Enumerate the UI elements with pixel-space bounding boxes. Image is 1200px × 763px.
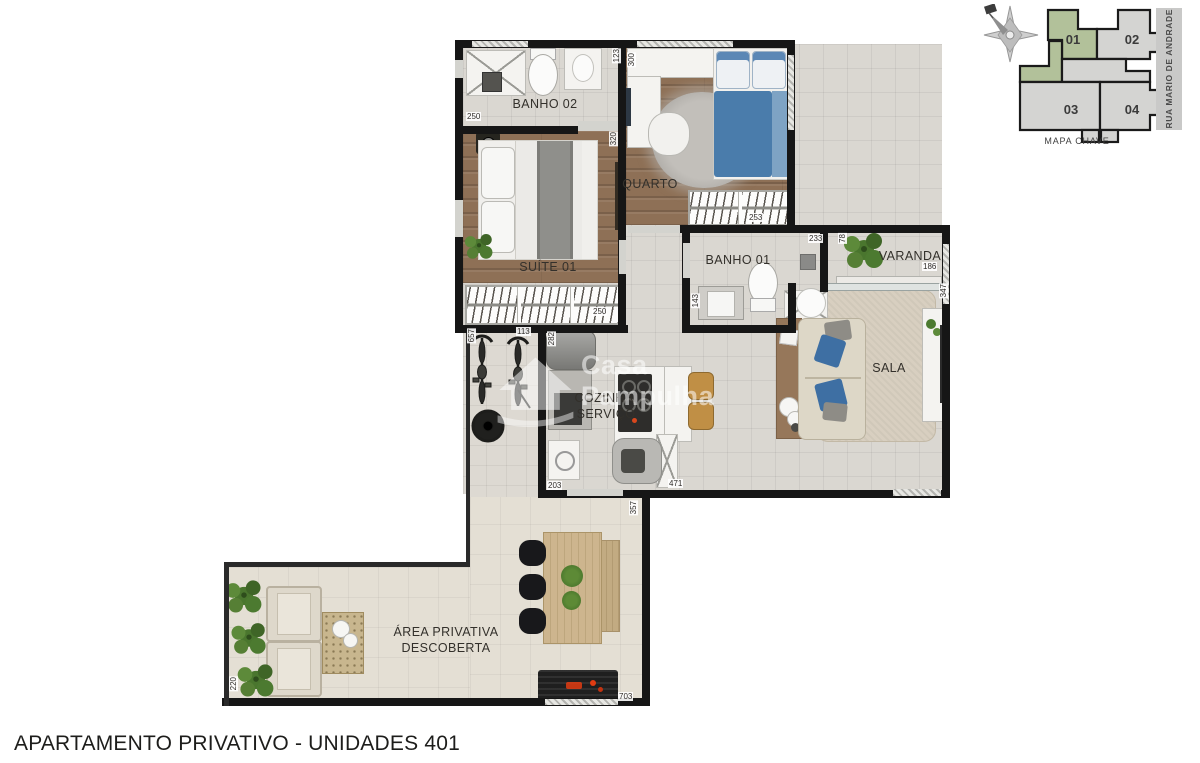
dim-banho02-w: 250 (466, 112, 481, 121)
toilet-tank-banho01 (750, 298, 776, 312)
wall-left (455, 40, 463, 333)
shower-drain (482, 72, 502, 92)
lounge-chair-1 (266, 586, 322, 642)
dim-quarto-closet: 253 (748, 213, 763, 222)
sofa-seam (805, 377, 861, 379)
dim-kitchen-bl: 203 (547, 481, 562, 490)
grill-flame-dot-1 (590, 680, 596, 686)
wall-banho01-left (682, 225, 690, 333)
pillow-quarto-2 (752, 51, 786, 89)
key-map-unit-04-label: 04 (1125, 102, 1140, 117)
closet-suite (465, 285, 624, 325)
key-map-unit-01-label: 01 (1066, 32, 1080, 47)
key-map-caption: MAPA CHAVE (1022, 136, 1132, 146)
table-plant-1 (561, 565, 583, 587)
terrace-wall-top (224, 562, 470, 567)
dim-varanda-left: 78 (838, 233, 847, 244)
window-sill-quarto-top (637, 41, 733, 47)
dim-kitchen-top: 282 (547, 331, 556, 346)
key-map-unit-02-label: 02 (1125, 32, 1139, 47)
wardrobe-divider (738, 192, 742, 224)
wardrobe-quarto (688, 190, 792, 226)
floor-plan-page: BANHO 02 QUARTO SUÍTE 01 BANHO 01 VARAND… (0, 0, 1200, 763)
area-line-1: ÁREA PRIVATIVA (380, 624, 512, 640)
window-sill-sala-bottom (893, 489, 941, 496)
wall-banho01-top (680, 225, 828, 233)
duvet-quarto (714, 91, 772, 177)
tank-basin (621, 449, 645, 473)
cozinha-line-2: SERVIÇO (560, 406, 652, 422)
bed-suite (478, 140, 598, 260)
dim-suite-wall: 320 (609, 131, 618, 146)
duvet-fold-quarto (772, 91, 787, 177)
lounge-cushion-1 (277, 593, 311, 635)
key-map-unit-03-label: 03 (1064, 102, 1078, 117)
room-label-suite01: SUÍTE 01 (505, 259, 591, 275)
closet-divider-1 (517, 287, 521, 323)
dim-terrace-l: 220 (229, 676, 238, 691)
round-side-table (796, 288, 826, 318)
cozinha-line-1: COZINHA/ (560, 390, 652, 406)
bike-2 (508, 338, 530, 408)
room-label-banho01: BANHO 01 (694, 252, 782, 268)
terrace-plant-3 (234, 658, 278, 702)
vanity-banho01 (698, 286, 744, 320)
dim-bikes-h: 657 (467, 328, 476, 343)
sofa-sala (798, 318, 866, 440)
toilet-banho02 (528, 54, 558, 96)
glass-door-varanda (828, 283, 942, 291)
area-line-2: DESCOBERTA (380, 640, 512, 656)
dim-terrace-r: 357 (629, 500, 638, 515)
bar-stool-1 (688, 372, 714, 400)
door-threshold-suite (619, 240, 626, 274)
terrace-plant-2 (228, 616, 270, 660)
bar-stool-2 (688, 402, 714, 430)
table-plant-2 (562, 591, 581, 610)
key-map-mid-shape (1062, 59, 1150, 82)
bike-1 (472, 336, 503, 441)
grill-flame-dot-2 (598, 687, 603, 692)
lounge-cushion-2 (277, 648, 311, 690)
wall-sala-stub (788, 283, 796, 333)
vanity-sink-banho01 (707, 291, 735, 317)
sink-bowl-banho02 (572, 54, 594, 82)
bed-quarto (713, 48, 789, 180)
door-threshold-banho02 (578, 121, 618, 131)
window-sill-quarto-right (788, 55, 794, 130)
closet-divider-2 (570, 287, 574, 323)
plant-suite (462, 228, 496, 264)
dining-stool-2 (519, 574, 546, 600)
pillow-suite-1 (481, 147, 515, 199)
room-label-area-privativa: ÁREA PRIVATIVA DESCOBERTA (380, 624, 512, 656)
terrace-side-table (322, 612, 364, 674)
window-sill-banho02 (472, 41, 528, 47)
dim-bikes-w: 113 (516, 327, 531, 336)
door-threshold-banho01 (683, 243, 690, 278)
wall-banho01-bottom (682, 325, 796, 333)
dim-banho02-depth: 123 (612, 48, 621, 63)
side-table-plate-2 (343, 633, 358, 648)
street-strip: RUA MARIO DE ANDRADE (1156, 8, 1182, 130)
tv-quarto (626, 88, 631, 126)
key-map-annex-shape (1020, 41, 1062, 82)
dim-varanda-w: 186 (922, 262, 937, 271)
dim-banho01-top: 233 (808, 234, 823, 243)
desk-top-quarto (627, 48, 719, 78)
dining-table (543, 532, 602, 644)
wall-banho02-bottom (455, 126, 578, 134)
room-label-cozinha: COZINHA/ SERVIÇO (560, 390, 652, 422)
pillow-quarto-1 (716, 51, 750, 89)
wall-varanda-top (828, 225, 950, 233)
grill-flame-bar (566, 682, 582, 689)
laundry-tank (612, 438, 662, 484)
room-label-quarto: QUARTO (618, 176, 682, 192)
window-gap-left-1 (455, 60, 463, 78)
door-threshold-corridor (628, 226, 680, 233)
door-threshold-kitchen-terrace (567, 489, 623, 496)
room-label-varanda: VARANDA (868, 248, 952, 264)
dim-kitchen-br: 471 (668, 479, 683, 488)
desk-chair-quarto (648, 112, 690, 156)
dining-stool-3 (519, 608, 546, 634)
throw-blanket-suite (537, 141, 573, 259)
dim-suite-closet: 250 (592, 307, 607, 316)
room-label-banho02: BANHO 02 (500, 96, 590, 112)
dining-stool-1 (519, 540, 546, 566)
key-map: 01 02 03 04 (1012, 2, 1162, 152)
dim-sala-right: 347 (939, 283, 948, 298)
dim-banho01-h: 143 (691, 293, 700, 308)
wall-terrace-right (642, 490, 650, 706)
room-label-sala: SALA (858, 360, 920, 376)
street-name: RUA MARIO DE ANDRADE (1164, 9, 1174, 129)
dining-bench (600, 540, 620, 632)
wall-kitchen-left (538, 330, 546, 498)
washing-machine (548, 440, 580, 480)
alcove-boundary-line (466, 333, 470, 567)
plan-title: APARTAMENTO PRIVATIVO - UNIDADES 401 (14, 732, 460, 756)
floor-lamp (800, 254, 816, 270)
dim-quarto-w: 300 (627, 52, 636, 67)
key-map-unit-03-shape (1020, 82, 1100, 130)
sofa-pillow-gray-2 (822, 402, 848, 422)
window-sill-terrace-bottom (545, 699, 618, 705)
dim-terrace-b: 703 (618, 692, 633, 701)
window-gap-left-2 (455, 200, 463, 237)
bikes (468, 326, 538, 448)
washer-door (555, 451, 575, 471)
